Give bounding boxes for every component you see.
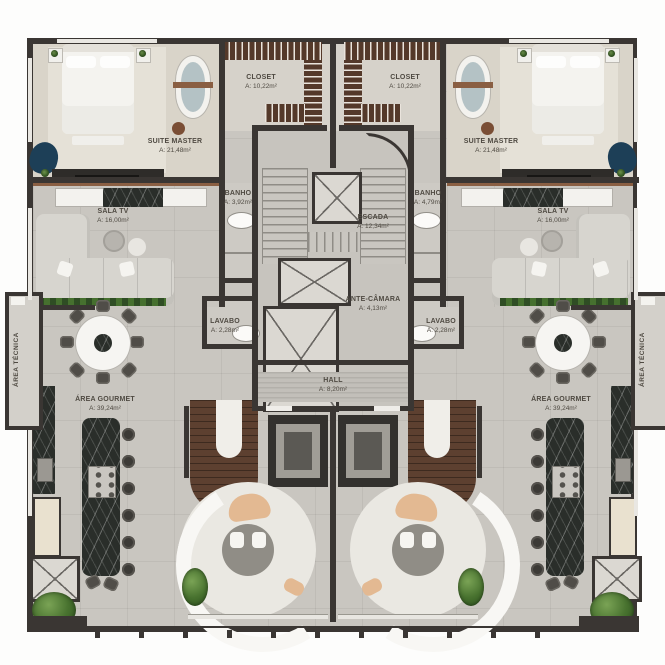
room-name: LAVABO <box>210 318 240 325</box>
sink <box>615 458 631 482</box>
pillow <box>536 56 566 68</box>
room-label-sala-tv-right: SALA TV A: 16,00m² <box>507 208 599 225</box>
room-area-tecnica-left <box>5 292 43 430</box>
door-opening <box>374 406 400 411</box>
dining-chair <box>96 372 110 384</box>
room-area: A: 3,92m² <box>192 199 284 207</box>
side-table <box>520 238 538 256</box>
side-table <box>128 238 146 256</box>
room-name: ANTE-CÂMARA <box>346 296 401 303</box>
lounge-center-rug <box>222 524 274 576</box>
plant <box>458 568 484 606</box>
room-area-tecnica-right <box>631 292 665 430</box>
room-label-suite-master-left: SUITE MASTER A: 21,48m² <box>129 138 221 155</box>
armchair <box>400 532 414 548</box>
stair-treads <box>262 168 308 264</box>
room-label-lavabo-right: LAVABO A: 2,28m² <box>395 318 487 335</box>
bar-stool <box>531 563 544 576</box>
window <box>28 208 32 300</box>
bath-tray <box>173 82 213 88</box>
sideboard-marble <box>103 188 163 207</box>
interior-wall <box>330 38 336 168</box>
plant <box>617 169 625 177</box>
interior-wall <box>440 38 446 183</box>
bar-stool <box>531 428 544 441</box>
bar-stool <box>122 428 135 441</box>
window <box>28 430 32 516</box>
cabinet <box>33 497 61 557</box>
bar-stool <box>122 536 135 549</box>
bath-stool <box>481 122 494 135</box>
side-table <box>541 230 563 252</box>
room-label-lavabo-left: LAVABO A: 2,28m² <box>179 318 271 335</box>
dining-chair <box>556 372 570 384</box>
dining-chair <box>522 336 536 348</box>
room-label-sala-tv-left: SALA TV A: 16,00m² <box>67 208 159 225</box>
interior-wall <box>571 305 639 310</box>
cooktop <box>552 466 580 498</box>
window <box>634 58 638 142</box>
bar-stool <box>531 536 544 549</box>
core-wall <box>339 125 414 131</box>
dining-chair <box>556 300 570 312</box>
closet-rack <box>361 104 401 122</box>
room-label-ante-camara: ANTE-CÂMARA A: 4,13m² <box>327 296 419 313</box>
interior-wall <box>408 344 464 349</box>
plant <box>139 50 146 57</box>
cooktop <box>88 466 116 498</box>
room-name: SALA TV <box>537 208 568 215</box>
vent-slot <box>11 297 25 305</box>
pillow <box>100 56 130 68</box>
window <box>634 208 638 300</box>
terrace-posts <box>95 630 571 638</box>
elevator-cab-inner <box>284 432 312 470</box>
core-wall <box>252 125 258 411</box>
interior-wall <box>184 406 189 478</box>
hall-wall <box>252 360 414 365</box>
table-centerpiece <box>554 334 572 352</box>
room-area: A: 39,24m² <box>59 405 151 413</box>
room-area: A: 8,20m² <box>287 386 379 394</box>
window <box>634 430 638 516</box>
room-name: BANHO <box>415 190 442 197</box>
room-name: ÁREA GOURMET <box>75 396 135 403</box>
side-table <box>103 230 125 252</box>
sliding-glass-door <box>338 614 478 619</box>
room-label-area-tecnica-right: ÁREA TÉCNICA <box>639 320 646 400</box>
table-centerpiece <box>94 334 112 352</box>
stair-landing <box>308 232 358 252</box>
room-label-area-gourmet-left: ÁREA GOURMET A: 39,24m² <box>59 396 151 413</box>
sink <box>37 458 53 482</box>
closet-rack <box>222 42 322 60</box>
interior-wall <box>477 406 482 478</box>
room-area: A: 12,34m² <box>327 223 419 231</box>
pillow <box>66 56 96 68</box>
room-area: A: 21,48m² <box>445 147 537 155</box>
throw-pillow <box>531 261 548 278</box>
room-name: BANHO <box>225 190 252 197</box>
bed-bench <box>542 136 594 145</box>
room-name: SUITE MASTER <box>148 138 203 145</box>
wood-trim <box>447 183 633 186</box>
sideboard-marble <box>503 188 563 207</box>
bar-stool <box>122 455 135 468</box>
closet-rack <box>265 104 305 122</box>
armchair <box>252 532 266 548</box>
bar-stool <box>122 509 135 522</box>
room-area: A: 4,79m² <box>382 199 474 207</box>
room-area: A: 4,13m² <box>327 305 419 313</box>
core-wall <box>408 125 414 411</box>
shower-glass <box>414 252 441 254</box>
armchair <box>422 532 436 548</box>
dining-chair <box>130 336 144 348</box>
plant <box>182 568 208 606</box>
interior-wall <box>222 278 252 283</box>
sliding-glass-door <box>188 614 328 619</box>
stair-void <box>424 400 450 458</box>
wood-trim <box>33 183 219 186</box>
room-area: A: 16,00m² <box>507 217 599 225</box>
dining-chair <box>592 336 606 348</box>
throw-pillow <box>119 261 136 278</box>
room-area: A: 10,22m² <box>359 83 451 91</box>
room-name: LAVABO <box>426 318 456 325</box>
room-name: CLOSET <box>390 74 420 81</box>
room-label-banho-left: BANHO A: 3,92m² <box>192 190 284 207</box>
plant <box>41 169 49 177</box>
room-name: SALA TV <box>97 208 128 215</box>
room-name: CLOSET <box>246 74 276 81</box>
window <box>28 58 32 142</box>
room-name: SUITE MASTER <box>464 138 519 145</box>
room-area: A: 10,22m² <box>215 83 307 91</box>
interior-wall <box>202 296 258 301</box>
room-label-closet-right: CLOSET A: 10,22m² <box>359 74 451 91</box>
plant <box>608 50 615 57</box>
interior-wall <box>219 38 225 183</box>
terrace-rail <box>85 626 581 628</box>
shower-glass <box>225 252 252 254</box>
room-area: A: 2,28m² <box>395 327 487 335</box>
room-label-area-gourmet-right: ÁREA GOURMET A: 39,24m² <box>515 396 607 413</box>
floor-plan: SUITE MASTER A: 21,48m² SUITE MASTER A: … <box>0 0 665 665</box>
room-area: A: 2,28m² <box>179 327 271 335</box>
pillow <box>570 56 600 68</box>
bar-stool <box>122 482 135 495</box>
core-wall <box>252 125 327 131</box>
bar-stool <box>531 455 544 468</box>
room-label-suite-master-right: SUITE MASTER A: 21,48m² <box>445 138 537 155</box>
cabinet <box>609 497 637 557</box>
vent-slot <box>641 297 655 305</box>
terrace-corner-wall <box>579 616 639 632</box>
room-label-escada: ESCADA A: 12,34m² <box>327 214 419 231</box>
room-name: HALL <box>323 377 342 384</box>
room-name: ÁREA GOURMET <box>531 396 591 403</box>
bar-stool <box>531 482 544 495</box>
door-opening <box>266 406 292 411</box>
room-area: A: 21,48m² <box>129 147 221 155</box>
dining-chair <box>60 336 74 348</box>
room-area: A: 39,24m² <box>515 405 607 413</box>
party-wall <box>330 411 336 622</box>
stair-void <box>216 400 242 458</box>
lounge-center-rug <box>392 524 444 576</box>
bath-tray <box>453 82 493 88</box>
interior-wall <box>202 344 258 349</box>
room-label-closet-left: CLOSET A: 10,22m² <box>215 74 307 91</box>
elevator-cab-inner <box>354 432 382 470</box>
interior-wall <box>414 278 444 283</box>
bar-stool <box>122 563 135 576</box>
armchair <box>230 532 244 548</box>
window <box>509 39 609 43</box>
room-area: A: 16,00m² <box>67 217 159 225</box>
room-label-area-tecnica-left: ÁREA TÉCNICA <box>13 320 20 400</box>
room-label-hall: HALL A: 8,20m² <box>287 377 379 394</box>
plant <box>520 50 527 57</box>
bath-stool <box>172 122 185 135</box>
bed-bench <box>72 136 124 145</box>
plant <box>51 50 58 57</box>
bar-stool <box>531 509 544 522</box>
dining-chair <box>96 300 110 312</box>
closet-rack <box>344 42 444 60</box>
window <box>57 39 157 43</box>
terrace-corner-wall <box>27 616 87 632</box>
room-label-banho-right: BANHO A: 4,79m² <box>382 190 474 207</box>
room-name: ESCADA <box>358 214 389 221</box>
